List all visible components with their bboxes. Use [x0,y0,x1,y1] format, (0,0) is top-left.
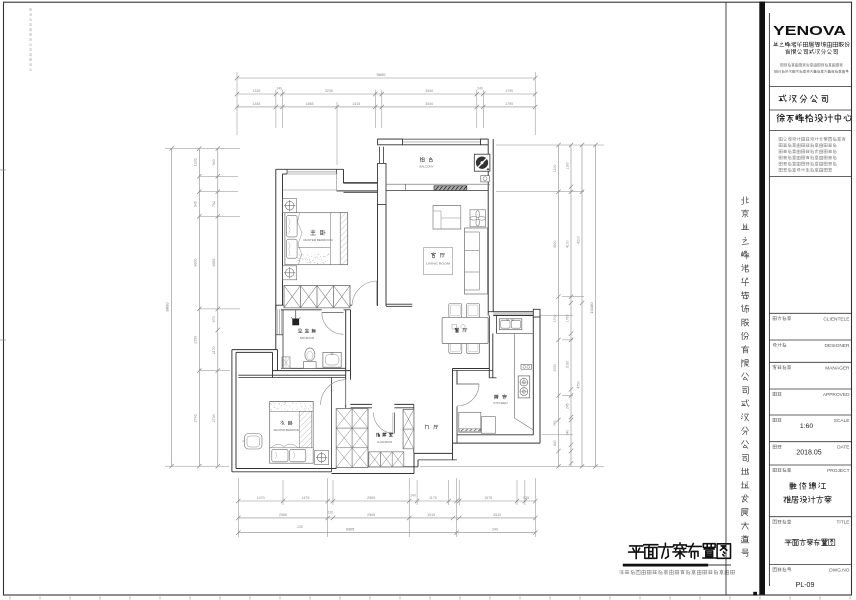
svg-text:945: 945 [194,201,198,207]
svg-text:240: 240 [276,87,282,91]
svg-text:2050: 2050 [553,364,557,372]
svg-text:4750: 4750 [577,381,581,389]
svg-text:1790: 1790 [505,102,513,106]
svg-text:840: 840 [553,440,557,446]
svg-text:2740: 2740 [194,414,198,422]
svg-text:625: 625 [523,496,529,500]
svg-text:640: 640 [566,429,570,435]
svg-text:SECOND BEDROOM: SECOND BEDROOM [274,429,300,432]
svg-text:KITCHEN: KITCHEN [494,401,508,405]
svg-text:SCALE: SCALE [834,418,850,424]
svg-text:PROJECT: PROJECT [827,468,849,474]
svg-text:8800: 8800 [165,302,170,312]
svg-text:DESIGNER: DESIGNER [824,343,850,349]
svg-text:1575: 1575 [484,496,492,500]
svg-text:CLIENTELE: CLIENTELE [823,316,849,322]
svg-text:2510: 2510 [493,513,501,517]
svg-text:YENOVA: YENOVA [773,24,846,38]
svg-text:1170: 1170 [212,346,216,354]
svg-text:LIVING ROOM: LIVING ROOM [426,262,451,266]
svg-text:760: 760 [553,420,557,426]
svg-text:1160: 1160 [566,162,570,169]
svg-text:10180: 10180 [589,302,594,314]
svg-text:3600: 3600 [194,259,198,267]
svg-text:1175: 1175 [429,496,437,500]
svg-text:3540: 3540 [425,89,433,93]
svg-text:PL-09: PL-09 [796,582,815,589]
svg-text:4200: 4200 [577,236,581,244]
svg-text:870: 870 [212,316,216,322]
svg-text:2730: 2730 [212,414,216,422]
svg-text:TITLE: TITLE [836,520,849,526]
svg-text:3685: 3685 [212,259,216,267]
svg-text:762: 762 [212,201,216,207]
svg-text:3540: 3540 [425,102,433,106]
svg-text:DATE: DATE [837,445,849,451]
svg-text:1200: 1200 [553,164,557,172]
svg-text:1790: 1790 [505,89,513,93]
svg-text:BATHROOM: BATHROOM [300,336,314,340]
svg-text:240: 240 [410,494,416,498]
svg-text:MASTER BEDROOM: MASTER BEDROOM [304,238,333,242]
svg-text:1475: 1475 [301,496,309,500]
svg-text:1415: 1415 [352,102,360,106]
svg-text:2250: 2250 [194,336,198,344]
svg-text:240: 240 [477,87,483,91]
svg-text:APPROVED: APPROVED [823,392,850,398]
svg-text:9305: 9305 [346,528,354,532]
svg-text:1:60: 1:60 [800,423,813,430]
svg-text:1345: 1345 [252,102,260,106]
svg-text:DWG.NO: DWG.NO [829,568,850,574]
svg-text:2030: 2030 [566,361,570,369]
svg-text:CLOAKROOM: CLOAKROOM [377,441,392,444]
svg-text:1470: 1470 [257,496,265,500]
svg-text:2565: 2565 [367,513,375,517]
svg-text:3230: 3230 [325,89,333,93]
svg-text:1515: 1515 [427,513,435,517]
svg-text:BALCONY: BALCONY [420,165,434,169]
svg-text:1865: 1865 [306,102,314,106]
svg-text:2018.05: 2018.05 [796,450,821,457]
svg-text:4100: 4100 [566,240,570,248]
svg-text:2565: 2565 [367,496,375,500]
svg-text:1320: 1320 [194,158,198,166]
svg-text:940: 940 [212,159,216,165]
svg-text:225: 225 [297,525,303,529]
svg-text:4500: 4500 [553,240,557,248]
svg-text:MANAGER: MANAGER [825,365,850,371]
svg-text:1325: 1325 [252,89,260,93]
svg-text:9600: 9600 [377,72,387,77]
svg-text:240: 240 [492,528,498,532]
svg-text:2965: 2965 [279,513,287,517]
svg-text:245: 245 [566,403,570,409]
svg-text:120: 120 [328,510,334,514]
